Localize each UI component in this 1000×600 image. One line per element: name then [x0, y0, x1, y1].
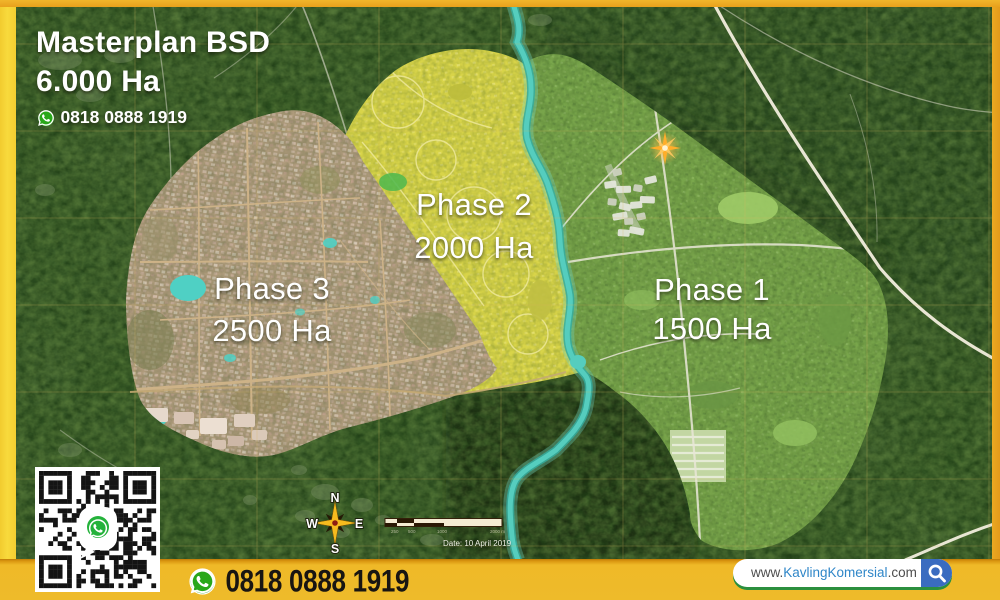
svg-text:S: S — [331, 542, 339, 556]
svg-text:Date: 10 April 2019: Date: 10 April 2019 — [443, 539, 512, 548]
svg-text:E: E — [355, 517, 363, 531]
svg-text:2000 m: 2000 m — [490, 529, 505, 534]
svg-text:500: 500 — [408, 529, 416, 534]
svg-text:1000: 1000 — [437, 529, 448, 534]
svg-text:W: W — [306, 517, 318, 531]
svg-text:N: N — [330, 491, 339, 505]
svg-text:250: 250 — [391, 529, 399, 534]
